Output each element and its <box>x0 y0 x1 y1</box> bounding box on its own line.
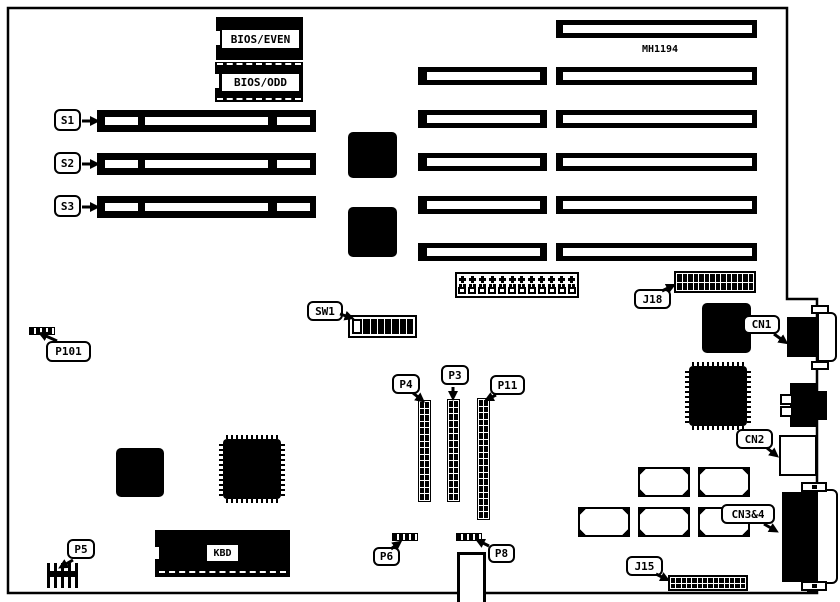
expansion-slot <box>418 110 547 128</box>
dip-switch-position <box>363 319 369 334</box>
power-pin-column <box>537 276 546 294</box>
chip-body <box>689 366 747 426</box>
expansion-slot <box>556 67 757 85</box>
socket-contact <box>105 117 138 125</box>
power-pin-socket <box>458 287 466 294</box>
header-p8 <box>456 533 482 541</box>
callout-p6: P6 <box>373 547 400 566</box>
pin-column <box>727 274 732 290</box>
cn34-mount-tab <box>801 581 827 591</box>
socket-contact <box>277 203 310 211</box>
header-p3 <box>447 399 460 502</box>
expansion-slot-column-right <box>0 0 840 602</box>
callout-s1: S1 <box>54 109 81 131</box>
slot-opening <box>563 72 752 80</box>
power-pin-column <box>567 276 576 294</box>
edge-connector-block <box>780 406 793 417</box>
pin-column <box>716 274 721 290</box>
socket-footprint-group <box>0 0 840 602</box>
socket-footprint <box>638 467 690 497</box>
expansion-slot <box>418 196 547 214</box>
pin-column <box>714 578 718 588</box>
slot-opening <box>427 115 540 123</box>
power-pin-socket <box>498 287 506 294</box>
pin-row <box>479 453 488 459</box>
slot-opening <box>427 158 540 166</box>
edge-connector-mid <box>790 383 817 427</box>
callout-cn1: CN1 <box>743 315 780 334</box>
chip-pins <box>747 369 751 423</box>
pin-row <box>479 426 488 432</box>
pin-row <box>449 414 458 420</box>
pin-column <box>705 274 710 290</box>
pin-teeth <box>47 577 78 588</box>
pin-row <box>420 442 429 448</box>
pin-row <box>449 434 458 440</box>
chip-notch <box>215 74 219 88</box>
expansion-slot-column-mid <box>0 0 840 602</box>
pin-column <box>683 274 688 290</box>
header-p6 <box>392 533 418 541</box>
expansion-slot <box>556 20 757 38</box>
chip-pins <box>692 426 744 430</box>
chip-notch <box>216 31 220 45</box>
power-pin-socket <box>478 287 486 294</box>
pin-row <box>479 493 488 499</box>
pin-row <box>420 422 429 428</box>
pin-column <box>692 578 696 588</box>
pin-column <box>710 274 715 290</box>
power-pin-column <box>518 276 527 294</box>
callout-cn34: CN3&4 <box>721 504 775 524</box>
callout-s2: S2 <box>54 152 81 174</box>
expansion-slot <box>418 243 547 261</box>
power-pin-socket <box>518 287 526 294</box>
socket-contact <box>277 117 310 125</box>
power-pin <box>459 276 466 283</box>
cn34-connector <box>782 492 810 582</box>
edge-connector-block <box>780 394 793 405</box>
pin-row <box>479 473 488 479</box>
power-pin-column <box>527 276 536 294</box>
power-pin-socket <box>468 287 476 294</box>
board-outline <box>0 0 840 602</box>
power-pin <box>548 276 555 283</box>
slot-opening <box>563 158 752 166</box>
pin-row <box>479 506 488 512</box>
dip-switch-position <box>371 319 377 334</box>
slot-opening <box>427 72 540 80</box>
socket-footprint <box>698 467 750 497</box>
callout-p101: P101 <box>46 341 91 362</box>
pin-column <box>682 578 686 588</box>
power-pin <box>538 276 545 283</box>
pin-column <box>725 578 729 588</box>
power-pin-socket <box>488 287 496 294</box>
dip-switch-position <box>400 319 406 334</box>
power-pin <box>558 276 565 283</box>
callout-cn2: CN2 <box>736 429 773 449</box>
callout-j15: J15 <box>626 556 663 576</box>
pin-row <box>420 435 429 441</box>
socket-contact <box>145 203 268 211</box>
expansion-slot <box>418 153 547 171</box>
pin-row <box>420 409 429 415</box>
dashed-edge <box>159 571 286 573</box>
power-pin <box>479 276 486 283</box>
pin-row <box>420 455 429 461</box>
slot-opening <box>427 201 540 209</box>
header-j18 <box>674 271 756 293</box>
pin-column <box>743 274 748 290</box>
ic-chip <box>348 132 397 178</box>
callout-s3: S3 <box>54 195 81 217</box>
pin-column <box>721 274 726 290</box>
power-pin-socket <box>508 287 516 294</box>
bios-odd-label: BIOS/ODD <box>222 74 299 91</box>
chip-pins <box>226 499 278 503</box>
pin-row <box>420 494 429 500</box>
pin-row <box>449 454 458 460</box>
bios-even-chip: BIOS/EVEN <box>216 17 303 60</box>
simm-socket <box>97 153 316 175</box>
ic-chip <box>116 448 164 497</box>
cn1-mount-tab <box>811 361 829 370</box>
power-pin-column <box>488 276 497 294</box>
pin-row <box>449 494 458 500</box>
pin-column <box>735 578 739 588</box>
slot-opening <box>427 248 540 256</box>
power-pin <box>518 276 525 283</box>
motherboard-diagram: BIOS/EVEN BIOS/ODD <box>0 0 840 602</box>
power-connector <box>455 272 579 298</box>
pin-row <box>479 446 488 452</box>
pin-row <box>479 400 488 406</box>
pin-row <box>420 461 429 467</box>
pin-column <box>699 274 704 290</box>
pin-row <box>479 413 488 419</box>
power-pin <box>469 276 476 283</box>
dashed-edge <box>217 98 301 100</box>
power-pin <box>509 276 516 283</box>
pin-column <box>749 274 754 290</box>
pin-row <box>479 479 488 485</box>
socket-footprint <box>638 507 690 537</box>
pin-column <box>730 578 734 588</box>
pin-row <box>449 408 458 414</box>
cn34-shell <box>816 489 838 584</box>
pin-row <box>420 428 429 434</box>
pin-row <box>479 407 488 413</box>
memory-socket-group <box>0 0 840 602</box>
pin-row <box>449 488 458 494</box>
edge-connector-mid-shell <box>817 391 827 420</box>
power-pin-socket <box>538 287 546 294</box>
power-pin-column <box>478 276 487 294</box>
pin-column <box>694 274 699 290</box>
dip-switch-position <box>407 319 413 334</box>
pin-column <box>708 578 712 588</box>
header-p101 <box>29 327 55 335</box>
expansion-slot <box>556 153 757 171</box>
socket-contact <box>105 203 138 211</box>
callout-p5: P5 <box>67 539 95 559</box>
power-pin-column <box>468 276 477 294</box>
power-pin-column <box>547 276 556 294</box>
callout-arrows <box>0 0 840 602</box>
pin-row <box>449 474 458 480</box>
pin-row <box>420 475 429 481</box>
expansion-slot <box>556 243 757 261</box>
pin-row <box>420 488 429 494</box>
slot-opening <box>563 248 752 256</box>
socket-footprint <box>578 507 630 537</box>
pin-row <box>449 401 458 407</box>
simm-socket <box>97 196 316 218</box>
pin-row <box>449 481 458 487</box>
callout-j18: J18 <box>634 289 671 309</box>
expansion-slot <box>556 110 757 128</box>
header-p11 <box>477 398 490 520</box>
slot-opening <box>563 201 752 209</box>
pin-row <box>479 512 488 518</box>
power-pin-column <box>557 276 566 294</box>
chip-notch <box>155 547 159 559</box>
power-pin <box>489 276 496 283</box>
power-pin-socket <box>548 287 556 294</box>
dip-switch-position <box>392 319 398 334</box>
pin-row <box>420 402 429 408</box>
chip-body <box>223 439 281 499</box>
simm-socket <box>97 110 316 132</box>
callout-p8: P8 <box>488 544 515 563</box>
pin-column <box>698 578 702 588</box>
ic-chip <box>348 207 397 257</box>
pin-row <box>479 466 488 472</box>
cn1-mount-tab <box>811 305 829 314</box>
connector-p5 <box>47 563 78 588</box>
socket-contact <box>277 160 310 168</box>
power-pin-socket <box>568 287 576 294</box>
pin-row <box>479 433 488 439</box>
pin-column <box>676 578 680 588</box>
keyboard-din-connector <box>457 552 486 602</box>
qfp-chip <box>685 362 751 430</box>
pin-column <box>732 274 737 290</box>
cn2-connector <box>779 435 817 476</box>
pin-row <box>479 486 488 492</box>
pin-row <box>479 459 488 465</box>
pin-column <box>741 578 745 588</box>
pin-row <box>479 499 488 505</box>
header-j15 <box>668 575 748 591</box>
socket-contact <box>145 160 268 168</box>
socket-contact <box>105 160 138 168</box>
power-pin-column <box>498 276 507 294</box>
bios-odd-chip: BIOS/ODD <box>215 62 303 102</box>
kbd-controller-chip: KBD <box>155 530 290 577</box>
pin-teeth <box>47 563 78 571</box>
pin-row <box>420 415 429 421</box>
power-pin <box>528 276 535 283</box>
power-pin <box>568 276 575 283</box>
cn34-mount-tab <box>801 482 827 492</box>
pin-row <box>449 421 458 427</box>
pin-column <box>703 578 707 588</box>
dip-switch-position <box>378 319 384 334</box>
pin-row <box>420 448 429 454</box>
pin-column <box>671 578 675 588</box>
qfp-chip <box>219 435 285 503</box>
dashed-edge <box>217 63 301 65</box>
pin-column <box>688 274 693 290</box>
power-pin-column <box>508 276 517 294</box>
power-pin-column <box>458 276 467 294</box>
pin-row <box>449 441 458 447</box>
kbd-label: KBD <box>207 545 238 561</box>
pin-column <box>677 274 682 290</box>
expansion-slot <box>556 196 757 214</box>
pin-column <box>719 578 723 588</box>
chip-pins <box>281 442 285 496</box>
power-pin <box>499 276 506 283</box>
dip-switch-sw1 <box>348 315 417 338</box>
part-number-label: MH1194 <box>630 44 690 56</box>
slot-opening <box>563 25 752 33</box>
expansion-slot <box>418 67 547 85</box>
pin-column <box>687 578 691 588</box>
dip-switch-position <box>352 319 362 334</box>
pin-row <box>479 420 488 426</box>
pin-column <box>738 274 743 290</box>
callout-sw1: SW1 <box>307 301 343 321</box>
callout-p3: P3 <box>441 365 469 385</box>
pin-row <box>449 448 458 454</box>
power-pin-socket <box>528 287 536 294</box>
pin-row <box>420 468 429 474</box>
header-p4 <box>418 400 431 502</box>
cn1-connector <box>787 317 817 357</box>
cn1-shell <box>817 312 837 362</box>
slot-opening <box>563 115 752 123</box>
socket-contact <box>145 117 268 125</box>
dip-switch-position <box>385 319 391 334</box>
pin-row <box>449 428 458 434</box>
bios-even-label: BIOS/EVEN <box>222 30 299 48</box>
pin-row <box>420 481 429 487</box>
pin-row <box>449 468 458 474</box>
callout-p11: P11 <box>490 375 525 395</box>
pin-row <box>479 440 488 446</box>
power-pin-socket <box>558 287 566 294</box>
callout-p4: P4 <box>392 374 420 394</box>
pin-row <box>449 461 458 467</box>
